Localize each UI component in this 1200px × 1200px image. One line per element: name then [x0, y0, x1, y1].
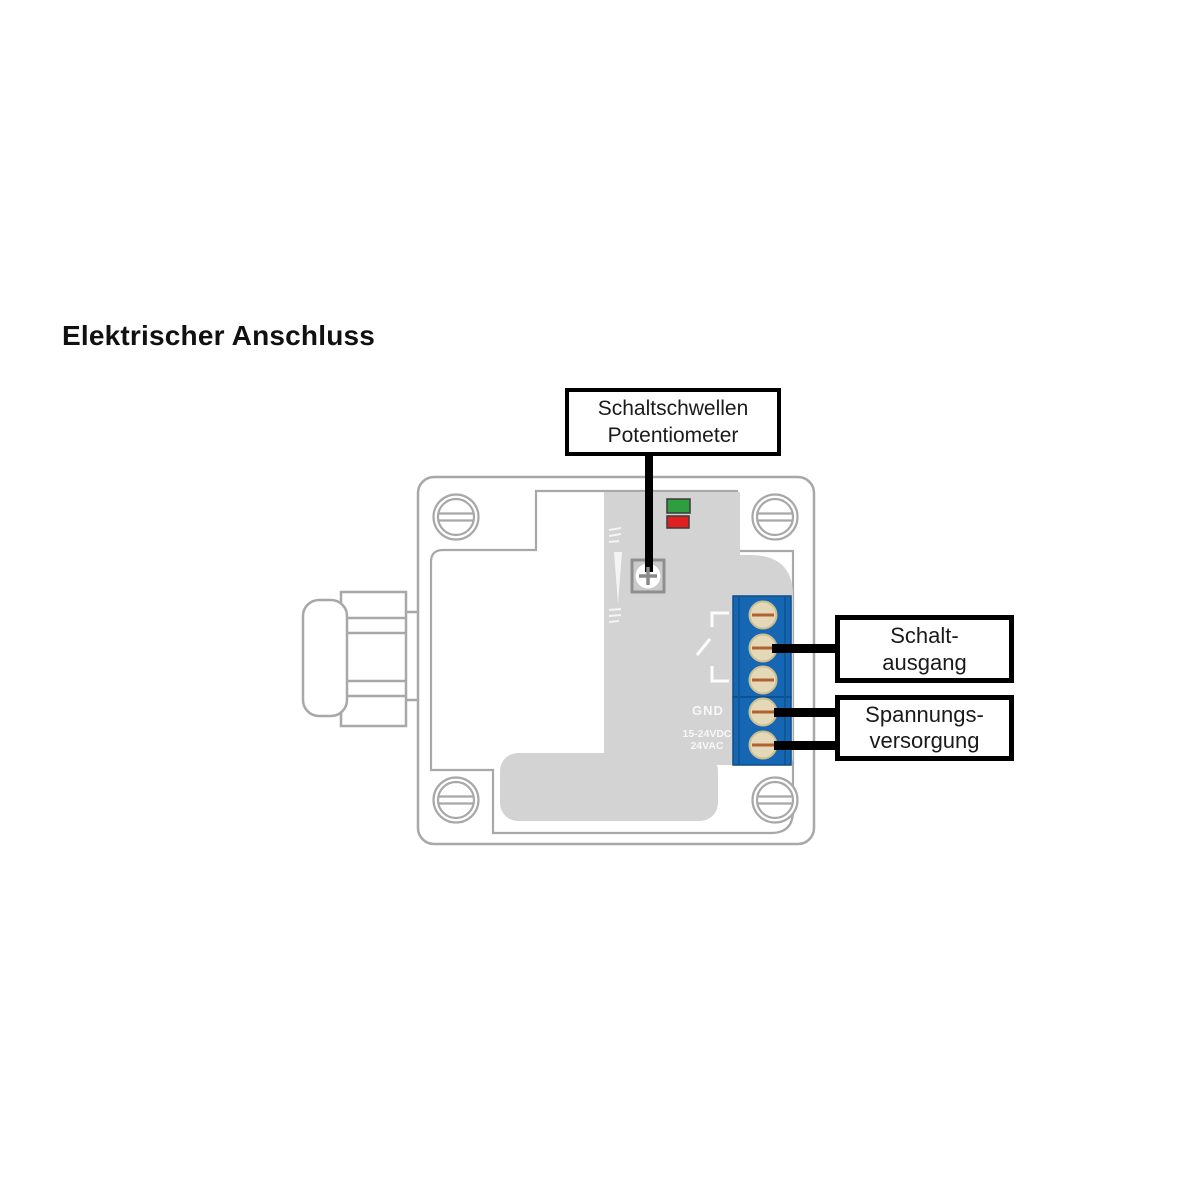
terminal-screw-4 [750, 699, 777, 726]
pointer-line-power-top [774, 708, 836, 717]
terminal-screw-5 [750, 732, 777, 759]
callout-pot-line2: Potentiometer [608, 422, 739, 449]
pointer-line-power-bottom [774, 741, 836, 750]
callout-schaltausgang: Schalt- ausgang [835, 615, 1014, 683]
callout-pwr-line1: Spannungs- [865, 702, 984, 728]
gland-cap [303, 600, 347, 716]
terminal-screw-1 [750, 602, 777, 629]
pointer-line-potentiometer [645, 454, 653, 572]
pcb-label-voltage-line2: 24VAC [667, 740, 747, 752]
terminal-screws [750, 602, 777, 759]
pcb-label-voltage-line1: 15-24VDC [667, 728, 747, 740]
callout-pot-line1: Schaltschwellen [598, 395, 749, 422]
terminal-screw-3 [750, 667, 777, 694]
corner-screw-top-left [434, 495, 479, 540]
corner-screw-bottom-right [753, 778, 798, 823]
callout-schaltschwellen-potentiometer: Schaltschwellen Potentiometer [565, 388, 781, 456]
callout-spannungsversorgung: Spannungs- versorgung [835, 695, 1014, 761]
page: Elektrischer Anschluss [0, 0, 1200, 1200]
callout-out-line1: Schalt- [890, 622, 958, 649]
gland-nut [341, 592, 406, 726]
led-green [667, 499, 690, 513]
corner-screw-bottom-left [434, 778, 479, 823]
device-diagram [0, 0, 1200, 1200]
led-red [667, 516, 689, 528]
callout-out-line2: ausgang [882, 649, 966, 676]
cable-gland [303, 592, 421, 726]
corner-screw-top-right [753, 495, 798, 540]
pcb-label-gnd: GND [678, 703, 738, 718]
pointer-line-switch-output [772, 644, 836, 653]
callout-pwr-line2: versorgung [869, 728, 979, 754]
